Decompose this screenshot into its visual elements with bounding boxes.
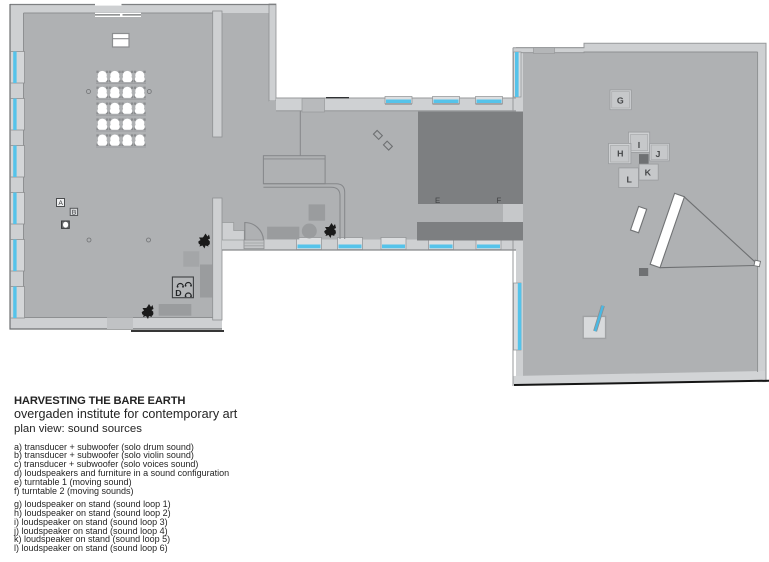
svg-text:L: L: [627, 175, 633, 185]
svg-text:D: D: [175, 288, 181, 298]
svg-text:B: B: [72, 209, 77, 216]
svg-text:E: E: [435, 196, 440, 205]
svg-text:G: G: [617, 95, 624, 105]
svg-text:F: F: [497, 196, 502, 205]
svg-text:H: H: [617, 149, 623, 159]
svg-text:I: I: [638, 140, 640, 150]
svg-text:K: K: [645, 168, 652, 178]
svg-text:A: A: [58, 200, 63, 207]
svg-text:J: J: [656, 149, 661, 159]
